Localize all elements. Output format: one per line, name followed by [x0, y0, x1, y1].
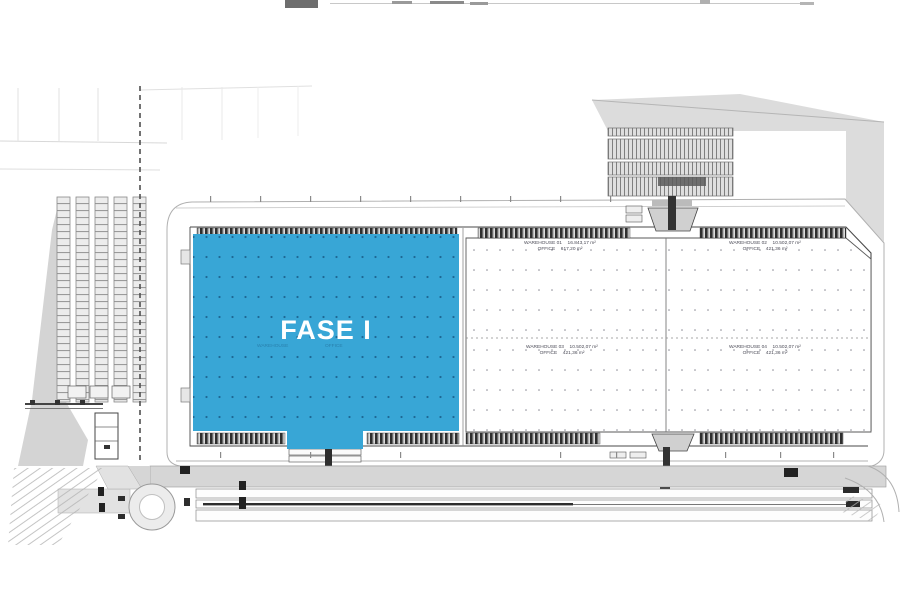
unit-name: WAREHOUSE 01: [524, 241, 562, 246]
south-parking-strips: [196, 487, 872, 521]
parking-lot-north-west: [608, 128, 733, 196]
unit-label-wh01: WAREHOUSE 0116.843,17 m² OFFICE617,20 m²: [480, 240, 640, 252]
unit-office-label: OFFICE: [743, 247, 761, 252]
unit-office-label: OFFICE: [540, 351, 558, 356]
siteplan-page: FASE I WAREHOUSE OFFICE WAREHOUSE 0116.8…: [0, 0, 900, 600]
north-ramp: [626, 196, 698, 231]
unit-office-area: 421,36 m²: [563, 351, 585, 356]
fase-overprint-left: WAREHOUSE: [257, 344, 288, 349]
unit-office-area: 421,36 m²: [766, 351, 788, 356]
unit-area: 16.843,17 m²: [568, 241, 596, 246]
unit-office-area: 421,36 m²: [766, 247, 788, 252]
top-cutoff-drawing: [285, 0, 814, 8]
unit-office-area: 617,20 m²: [561, 247, 583, 252]
fase-label: FASE I: [280, 315, 372, 346]
fase-block-extension: [287, 430, 363, 449]
unit-office-label: OFFICE: [538, 247, 556, 252]
unit-name: WAREHOUSE 02: [729, 241, 767, 246]
unit-label-wh03: WAREHOUSE 0310.502,07 m² OFFICE421,36 m²: [482, 344, 642, 356]
fase-block[interactable]: FASE I WAREHOUSE OFFICE: [193, 234, 459, 431]
unit-name: WAREHOUSE 03: [526, 345, 564, 350]
warehouse-interior: [463, 228, 871, 446]
unit-area: 10.502,07 m²: [773, 345, 801, 350]
unit-area: 10.502,07 m²: [570, 345, 598, 350]
unit-label-wh02: WAREHOUSE 0210.502,07 m² OFFICE421,36 m²: [690, 240, 840, 252]
parking-rows-west: [57, 197, 146, 402]
unit-label-wh04: WAREHOUSE 0410.502,07 m² OFFICE421,36 m²: [690, 344, 840, 356]
perimeter-road-inner-edge: [176, 206, 845, 208]
unit-area: 10.502,07 m²: [773, 241, 801, 246]
unit-office-label: OFFICE: [743, 351, 761, 356]
unit-name: WAREHOUSE 04: [729, 345, 767, 350]
street-lines: [0, 86, 312, 170]
fase-overprint-right: OFFICE: [325, 344, 343, 349]
